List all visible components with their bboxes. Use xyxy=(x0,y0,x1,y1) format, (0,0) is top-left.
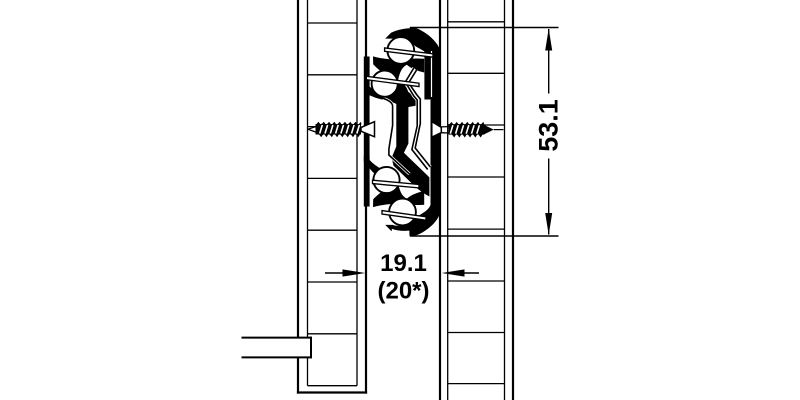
svg-text:19.1: 19.1 xyxy=(380,250,427,277)
svg-text:(20*): (20*) xyxy=(377,278,429,305)
svg-text:53.1: 53.1 xyxy=(534,99,564,152)
